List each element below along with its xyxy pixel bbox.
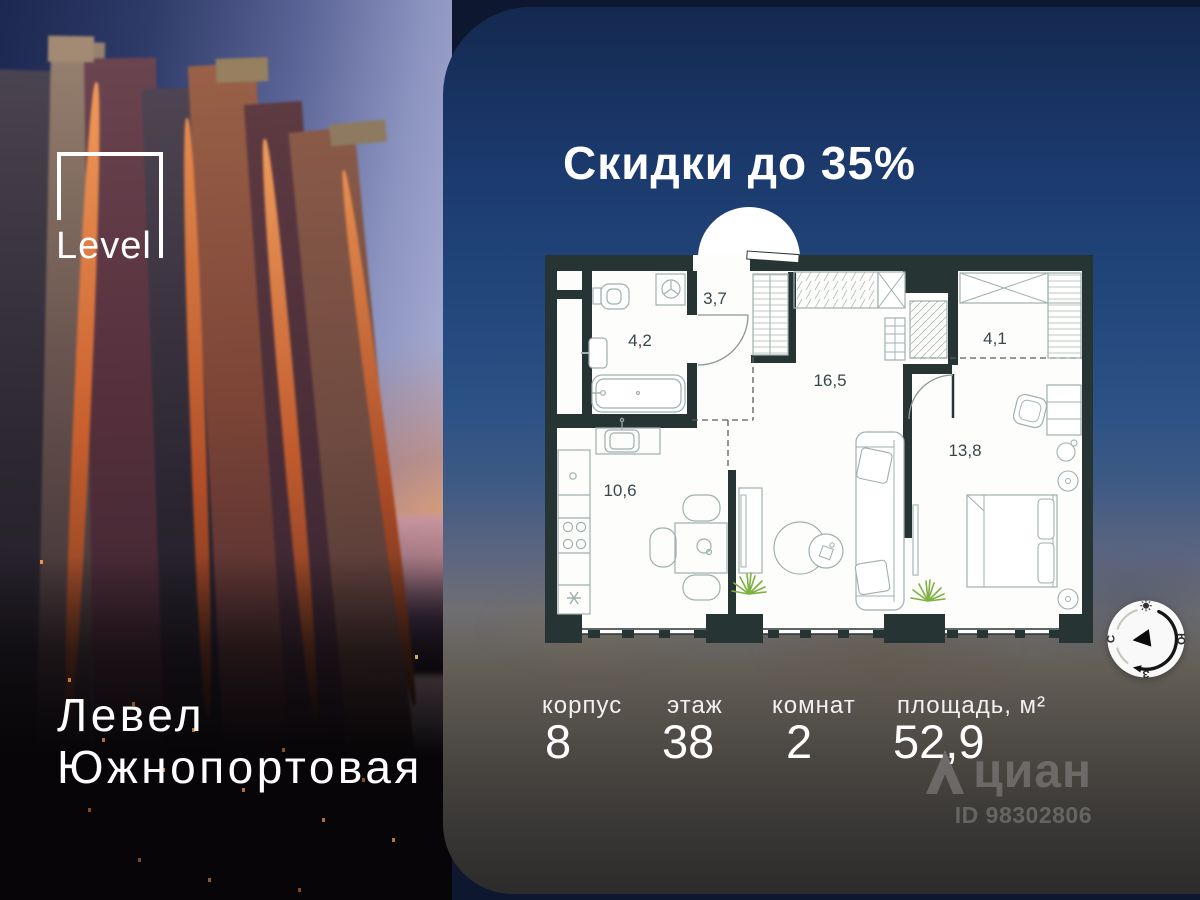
compass-letter-west: З <box>1142 667 1149 679</box>
level-logo-text: Level <box>56 225 152 268</box>
compass-icon: С Ю З <box>1096 589 1196 689</box>
cian-brand-text: циан <box>973 748 1092 796</box>
tower-cap <box>48 36 94 63</box>
room-area-closet: 4,1 <box>983 329 1007 348</box>
room-area-hallway: 3,7 <box>703 289 727 308</box>
compass-letter-north: С <box>1106 635 1118 643</box>
project-name-line2: Южнопортовая <box>57 740 423 794</box>
level-logo-frame <box>57 152 163 156</box>
room-area-bathroom: 4,2 <box>628 331 652 350</box>
project-name-line1: Левел <box>57 688 205 742</box>
tower-cap <box>216 57 269 83</box>
tower-cap <box>329 120 387 147</box>
building-photo: Level Левел Южнопортовая <box>0 0 452 900</box>
detail-value-building: 8 <box>545 714 571 769</box>
listing-promo-image: Level Левел Южнопортовая Скидки до 35% <box>0 0 1200 900</box>
room-area-bedroom: 13,8 <box>948 441 981 460</box>
listing-id: ID 98302806 <box>884 802 1092 829</box>
floor-plan: 3,7 4,2 16,5 4,1 13,8 10,6 <box>543 200 1095 652</box>
level-logo-frame <box>159 152 163 258</box>
room-area-living: 16,5 <box>813 371 846 390</box>
cian-watermark: циан ID 98302806 <box>884 748 1092 829</box>
lit-windows <box>40 560 43 564</box>
compass-letter-south: Ю <box>1174 633 1186 645</box>
sun-icon <box>1140 600 1151 611</box>
detail-value-floor: 38 <box>662 714 714 769</box>
room-area-kitchen: 10,6 <box>603 481 636 500</box>
detail-label-rooms: комнат <box>772 692 856 720</box>
cian-logo-icon <box>925 750 965 794</box>
level-logo-frame <box>57 152 61 220</box>
detail-value-rooms: 2 <box>786 714 812 769</box>
promo-title: Скидки до 35% <box>563 136 916 190</box>
